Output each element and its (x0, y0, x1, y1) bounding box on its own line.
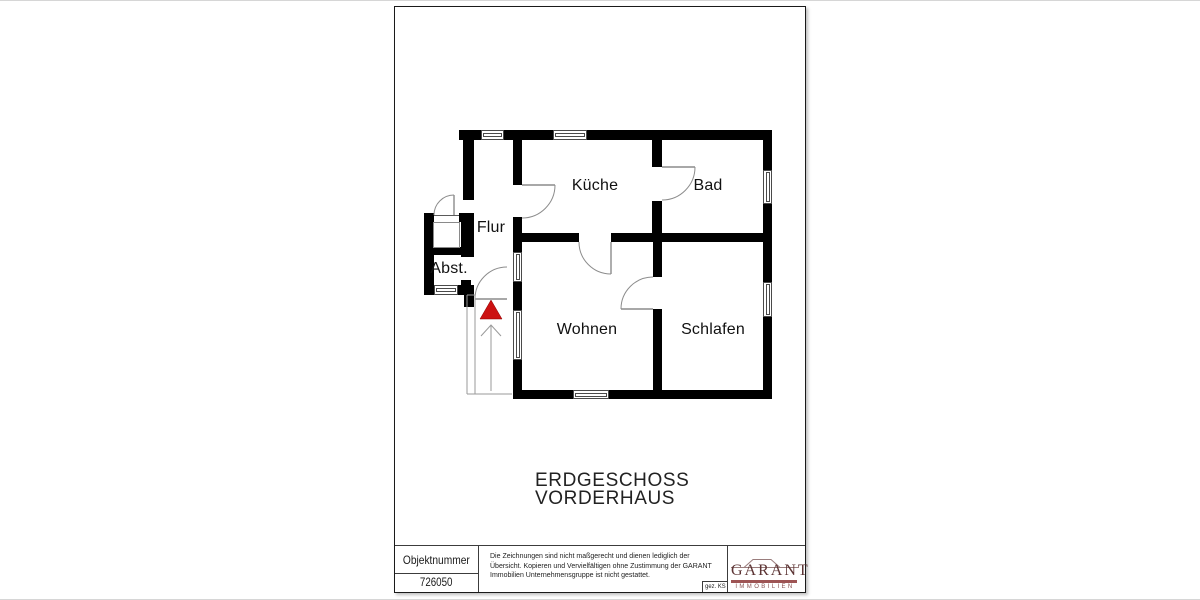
object-number-value-text: 726050 (420, 577, 453, 589)
signature-box: gez. KS (702, 581, 727, 592)
object-number-label: Objektnummer (395, 546, 478, 574)
title-block: Objektnummer 726050 Die Zeichnungen sind… (395, 545, 805, 592)
room-label-abst: Abst. (430, 260, 467, 278)
room-label-schlafen: Schlafen (681, 321, 745, 339)
disclaimer-cell: Die Zeichnungen sind nicht maßgerecht un… (479, 546, 728, 592)
room-label-wohnen: Wohnen (557, 321, 618, 339)
floor-title: ERDGESCHOSS VORDERHAUS (535, 472, 689, 508)
logo-bar (731, 580, 797, 583)
garant-logo: GARANT IMMOBILIEN (731, 554, 799, 590)
room-label-flur: Flur (477, 219, 505, 237)
object-number-cell: Objektnummer 726050 (395, 546, 479, 592)
disclaimer-text: Die Zeichnungen sind nicht maßgerecht un… (490, 552, 718, 581)
floor-title-line2: VORDERHAUS (535, 490, 689, 508)
floorplan-sheet: KücheBadFlurAbst.WohnenSchlafen ERDGESCH… (394, 6, 806, 593)
signature-text: gez. KS (705, 582, 725, 592)
logo-subtitle: IMMOBILIEN (731, 584, 799, 590)
object-number-label-text: Objektnummer (403, 553, 470, 567)
screenshot-canvas: KücheBadFlurAbst.WohnenSchlafen ERDGESCH… (0, 0, 1200, 600)
logo-wordmark: GARANT (731, 563, 799, 578)
object-number-value: 726050 (395, 574, 478, 592)
room-label-kueche: Küche (572, 177, 618, 195)
room-label-bad: Bad (693, 177, 722, 195)
